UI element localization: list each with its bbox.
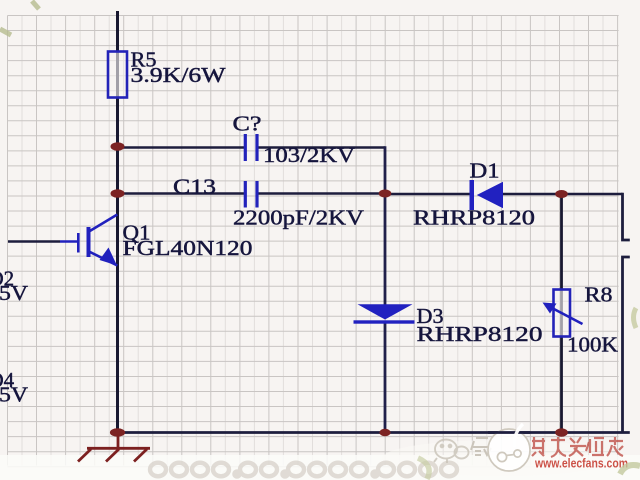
svg-text:RHRP8120: RHRP8120	[413, 206, 535, 230]
svg-text:2200pF/2KV: 2200pF/2KV	[233, 206, 364, 230]
svg-text:RHRP8120: RHRP8120	[417, 322, 543, 346]
svg-text:C13: C13	[173, 175, 216, 199]
svg-text:103/2KV: 103/2KV	[263, 143, 355, 167]
svg-text:100K: 100K	[567, 333, 618, 357]
svg-text:R8: R8	[585, 283, 613, 307]
svg-text:5V: 5V	[0, 281, 28, 305]
svg-text:FGL40N120: FGL40N120	[123, 236, 253, 260]
svg-text:3.9K/6W: 3.9K/6W	[131, 63, 226, 87]
svg-text:5V: 5V	[0, 383, 28, 407]
svg-text:www.elecfans.com: www.elecfans.com	[534, 457, 628, 471]
svg-text:C?: C?	[233, 112, 262, 136]
svg-text:D1: D1	[470, 159, 500, 183]
